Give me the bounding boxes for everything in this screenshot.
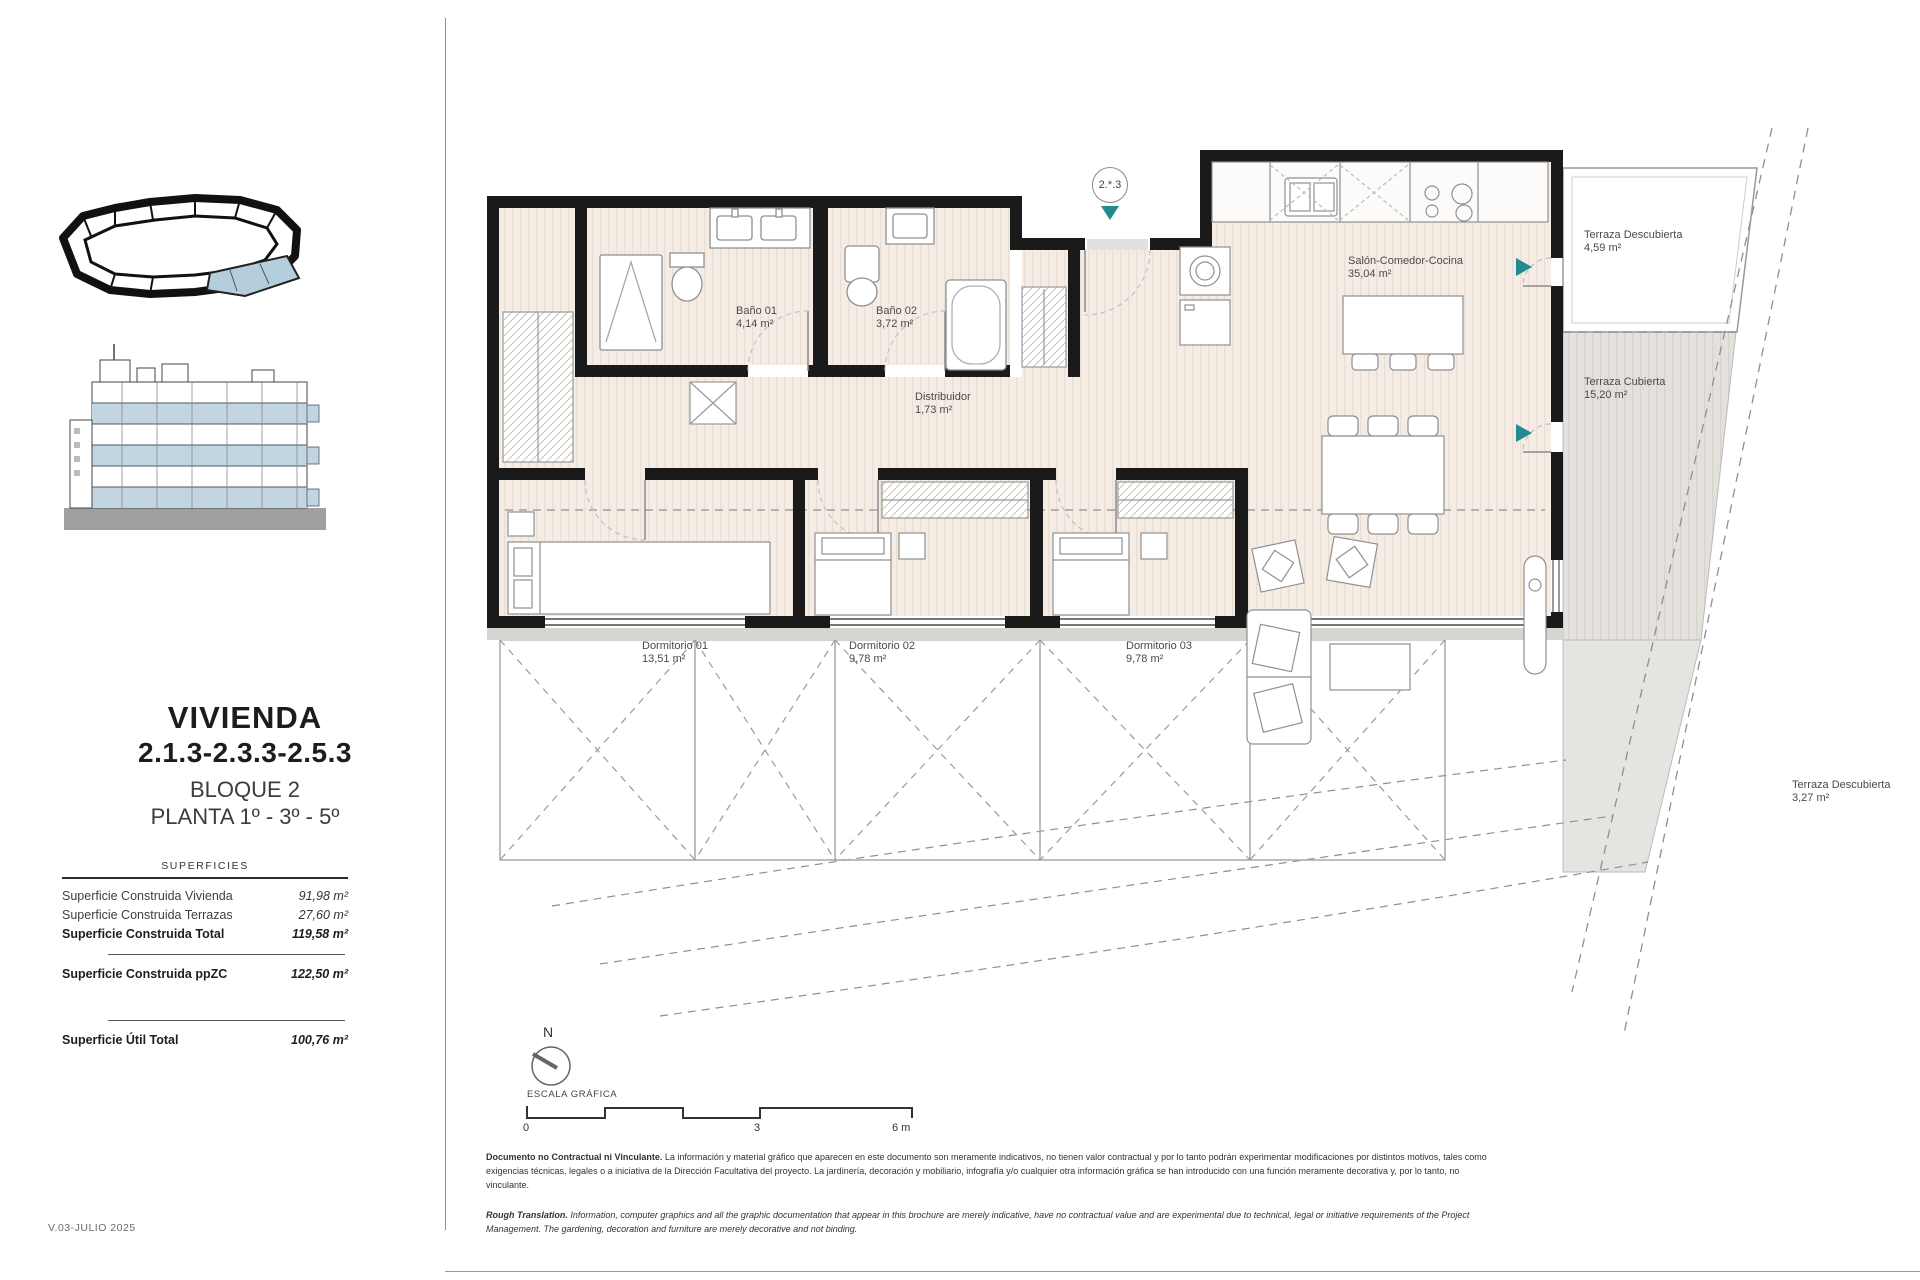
window-sill-band [487, 628, 1563, 640]
pedestal-sink [845, 246, 879, 282]
scale-title: ESCALA GRÁFICA [527, 1089, 617, 1100]
armchair [1252, 540, 1304, 592]
kitchen-island [1343, 296, 1463, 354]
room-label-dormitorio01: Dormitorio 0113,51 m² [642, 640, 708, 666]
nightstand [899, 533, 925, 559]
coffee-table [1330, 644, 1410, 690]
armchair [1327, 537, 1378, 588]
scale-tick-3: 3 [754, 1122, 760, 1134]
floor-plan-svg [0, 0, 1920, 1280]
bathtub [946, 280, 1006, 370]
scale-tick-6: 6 m [892, 1122, 910, 1134]
room-label-salon: Salón-Comedor-Cocina35,04 m² [1348, 255, 1463, 281]
kitchen-counter [1212, 162, 1548, 222]
scale-tick-0: 0 [523, 1122, 529, 1134]
room-label-distribuidor: Distribuidor1,73 m² [915, 391, 971, 417]
room-label-terraza-descubierta-2: Terraza Descubierta3,27 m² [1792, 779, 1890, 805]
shower [600, 255, 662, 350]
disclaimer-english: Rough Translation. Information, computer… [486, 1208, 1496, 1236]
appliance-unit [1180, 300, 1230, 345]
nightstand [508, 512, 534, 536]
room-label-dormitorio02: Dormitorio 029,78 m² [849, 640, 915, 666]
washer-unit [1180, 247, 1230, 295]
scale-bar [527, 1106, 912, 1118]
room-label-bano01: Baño 014,14 m² [736, 305, 777, 331]
room-label-terraza-cubierta: Terraza Cubierta15,20 m² [1584, 376, 1665, 402]
disclaimer-spanish: Documento no Contractual ni Vinculante. … [486, 1150, 1496, 1192]
nightstand [1141, 533, 1167, 559]
room-label-terraza-descubierta-1: Terraza Descubierta4,59 m² [1584, 229, 1682, 255]
brochure-page: VIVIENDA 2.1.3-2.3.3-2.5.3 BLOQUE 2 PLAN… [0, 0, 1920, 1280]
north-label: N [543, 1024, 553, 1040]
north-arrow-icon [532, 1047, 570, 1085]
unit-number-badge: 2.*.3 [1092, 167, 1128, 203]
room-label-dormitorio03: Dormitorio 039,78 m² [1126, 640, 1192, 666]
entry-arrow-icon [1101, 206, 1119, 220]
room-label-bano02: Baño 023,72 m² [876, 305, 917, 331]
dining-table [1322, 436, 1444, 514]
radiator [1524, 556, 1546, 674]
toilet-tank [670, 253, 704, 267]
toilet-bowl [672, 267, 702, 301]
double-bed [508, 542, 770, 614]
